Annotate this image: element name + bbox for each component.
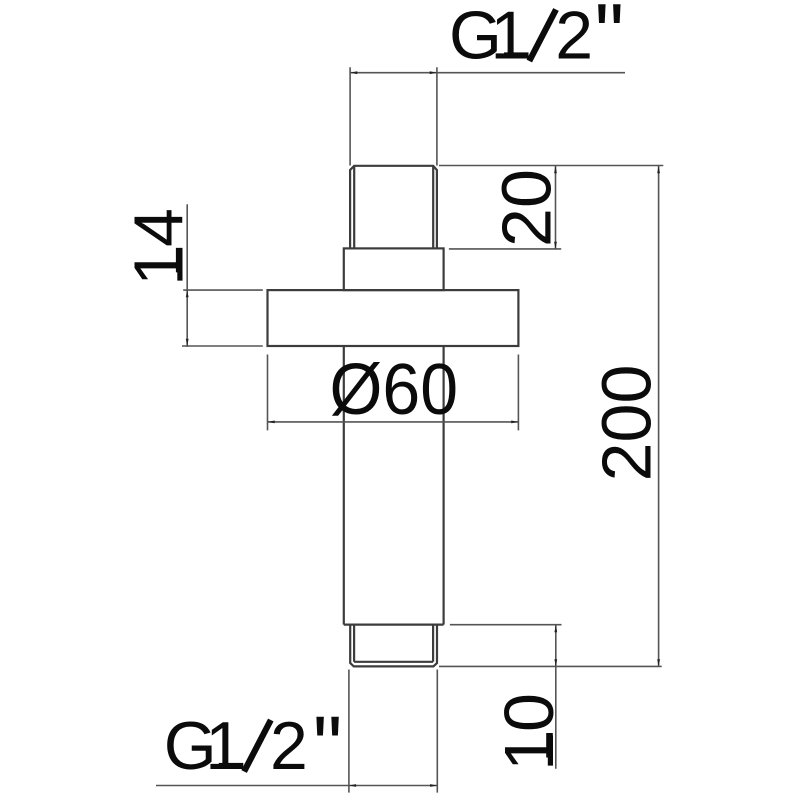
svg-text:1: 1 [491,0,529,74]
svg-text:20: 20 [488,169,566,247]
svg-text:200: 200 [587,365,665,482]
svg-text:2: 2 [270,708,308,784]
svg-text:2: 2 [555,0,593,74]
svg-text:10: 10 [490,693,568,771]
svg-text:": " [595,0,624,82]
svg-text:Ø60: Ø60 [330,349,459,429]
svg-text:1: 1 [205,708,243,784]
svg-text:": " [313,698,342,795]
svg-text:14: 14 [120,208,198,286]
